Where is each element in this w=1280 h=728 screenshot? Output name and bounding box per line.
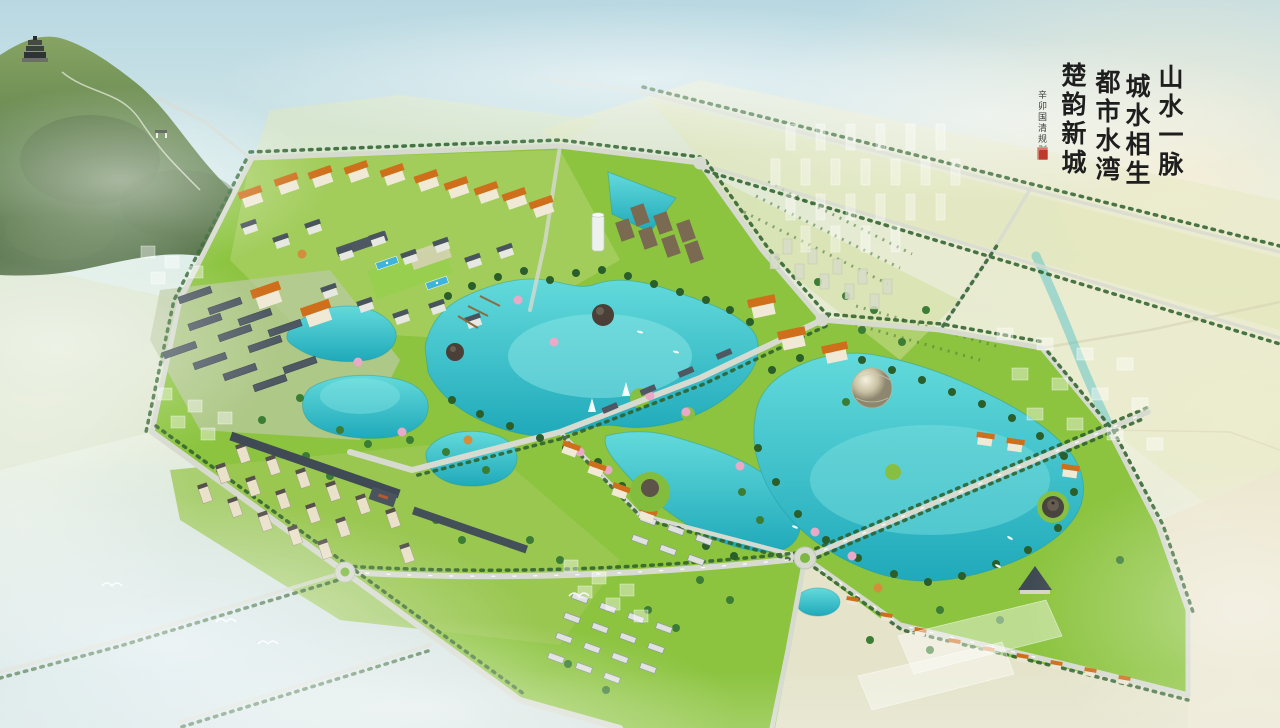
masterplan-rendering: 山水一脉 城水相生 都市水湾 楚韵新城 辛卯国清规划 — [0, 0, 1280, 728]
calligraphy-column-2: 城水相生 — [1124, 73, 1149, 189]
scene-canvas — [0, 0, 1280, 728]
calligraphy-column-3: 都市水湾 — [1094, 69, 1119, 185]
cylinder-tower-icon — [592, 213, 604, 251]
dark-dome-icon — [446, 343, 464, 361]
round-pavilion-icon — [1042, 496, 1064, 518]
dark-dome-icon — [592, 304, 614, 326]
calligraphy-column-1: 山水一脉 — [1157, 64, 1182, 180]
signature-seal-icon — [1037, 147, 1048, 160]
calligraphy-column-4: 楚韵新城 — [1060, 62, 1085, 178]
